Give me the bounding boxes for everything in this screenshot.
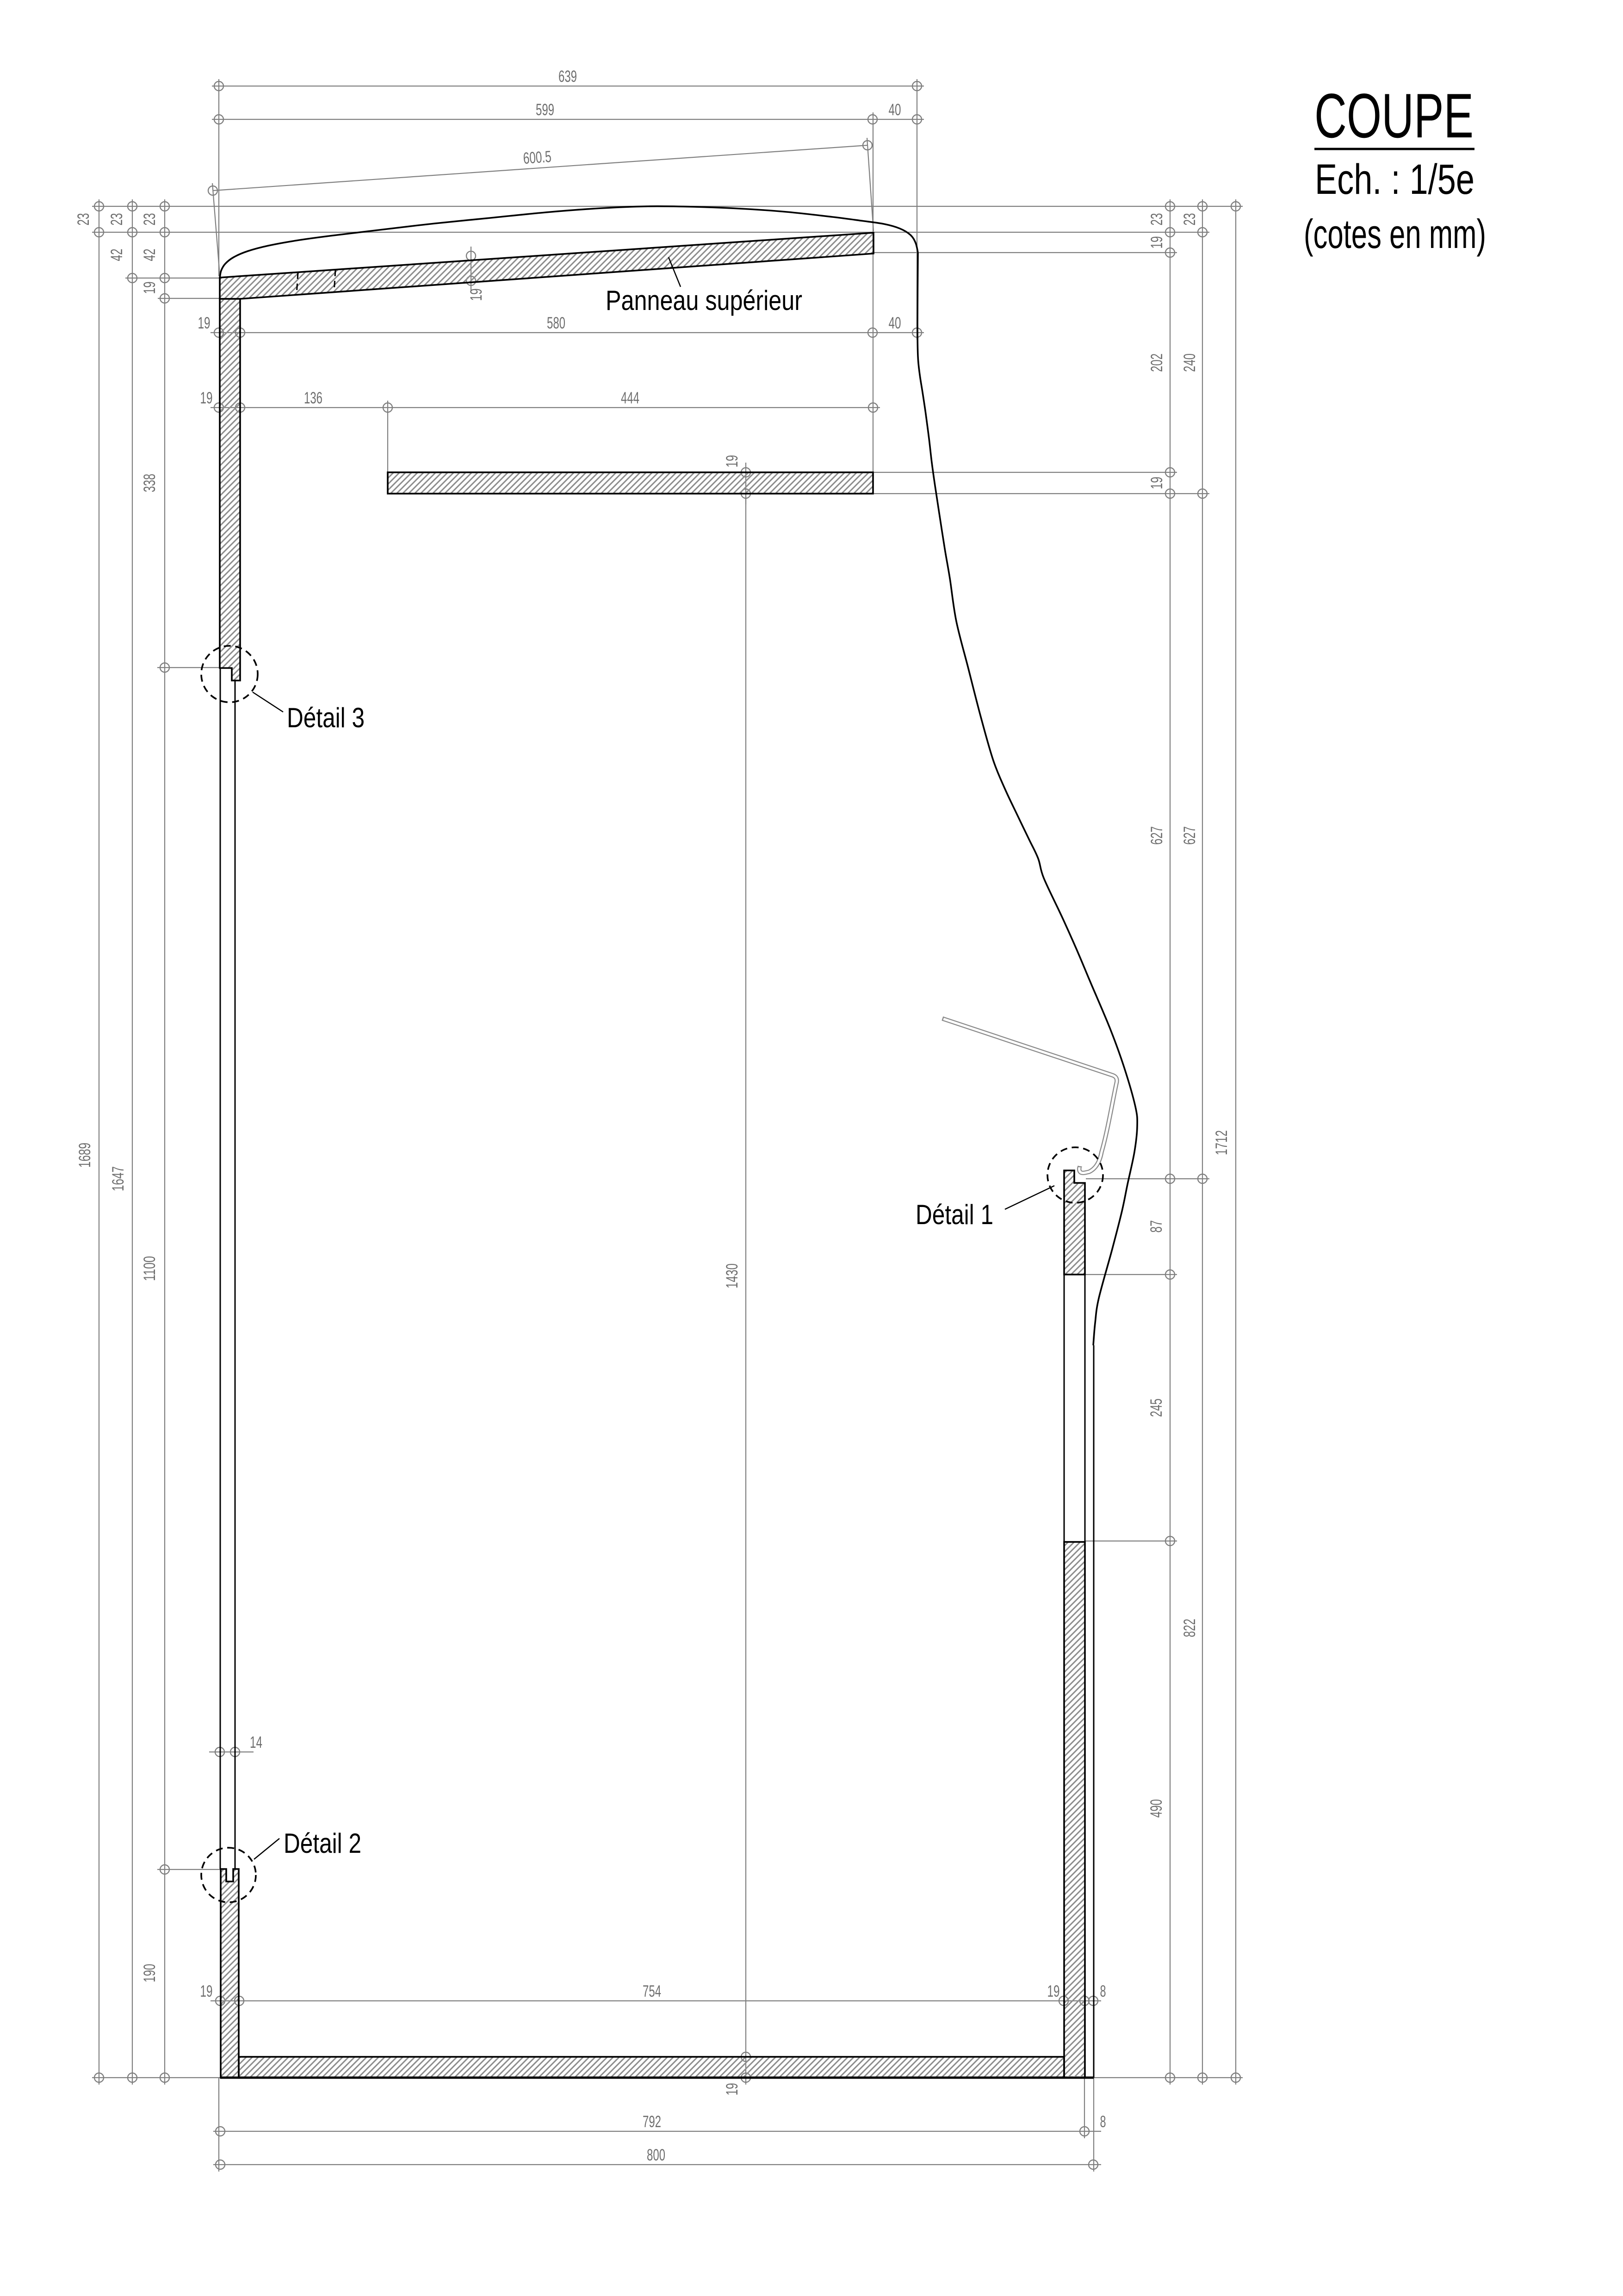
svg-text:599: 599 [536, 101, 554, 119]
svg-text:40: 40 [889, 314, 901, 332]
svg-text:639: 639 [558, 68, 577, 86]
svg-text:8: 8 [1100, 1982, 1106, 2000]
svg-text:444: 444 [621, 389, 639, 407]
svg-text:Panneau supérieur: Panneau supérieur [606, 285, 802, 316]
svg-text:800: 800 [647, 2146, 665, 2164]
svg-text:490: 490 [1147, 1799, 1165, 1818]
svg-text:1689: 1689 [76, 1143, 94, 1168]
svg-text:87: 87 [1147, 1220, 1165, 1233]
svg-text:(cotes en mm): (cotes en mm) [1304, 211, 1486, 257]
svg-text:19: 19 [200, 1982, 213, 2000]
svg-text:19: 19 [467, 289, 485, 301]
svg-text:1647: 1647 [109, 1166, 127, 1191]
svg-text:42: 42 [108, 249, 126, 261]
svg-text:190: 190 [141, 1964, 159, 1982]
svg-text:42: 42 [141, 249, 159, 261]
svg-text:23: 23 [74, 213, 93, 226]
svg-text:23: 23 [108, 213, 126, 226]
svg-text:136: 136 [304, 389, 322, 407]
svg-text:COUPE: COUPE [1314, 80, 1474, 151]
svg-text:Détail 3: Détail 3 [287, 702, 365, 733]
svg-text:627: 627 [1181, 826, 1199, 845]
svg-text:Détail 1: Détail 1 [916, 1199, 993, 1230]
svg-text:23: 23 [141, 213, 159, 226]
svg-text:40: 40 [889, 101, 901, 119]
svg-text:14: 14 [250, 1733, 262, 1751]
svg-text:580: 580 [547, 314, 565, 332]
svg-text:19: 19 [1148, 477, 1166, 489]
svg-text:240: 240 [1181, 353, 1199, 372]
svg-text:1430: 1430 [723, 1263, 741, 1288]
svg-text:19: 19 [1047, 1982, 1060, 2000]
svg-text:822: 822 [1181, 1619, 1199, 1637]
svg-text:23: 23 [1148, 213, 1166, 226]
svg-text:19: 19 [198, 314, 211, 332]
svg-text:1712: 1712 [1213, 1130, 1231, 1155]
svg-text:245: 245 [1147, 1399, 1165, 1417]
svg-text:600.5: 600.5 [522, 148, 552, 167]
svg-text:19: 19 [141, 282, 159, 294]
svg-text:19: 19 [723, 455, 741, 468]
svg-text:754: 754 [643, 1982, 661, 2000]
svg-text:8: 8 [1100, 2113, 1106, 2131]
svg-text:23: 23 [1181, 213, 1199, 226]
svg-text:Ech. : 1/5e: Ech. : 1/5e [1315, 156, 1474, 203]
svg-text:19: 19 [1148, 236, 1166, 249]
svg-text:Détail 2: Détail 2 [284, 1828, 361, 1859]
svg-text:338: 338 [141, 474, 159, 492]
svg-text:627: 627 [1148, 826, 1166, 845]
svg-text:19: 19 [200, 389, 213, 407]
svg-text:1100: 1100 [141, 1256, 159, 1281]
svg-text:19: 19 [723, 2083, 741, 2096]
svg-text:792: 792 [643, 2113, 661, 2131]
svg-text:202: 202 [1148, 353, 1166, 372]
